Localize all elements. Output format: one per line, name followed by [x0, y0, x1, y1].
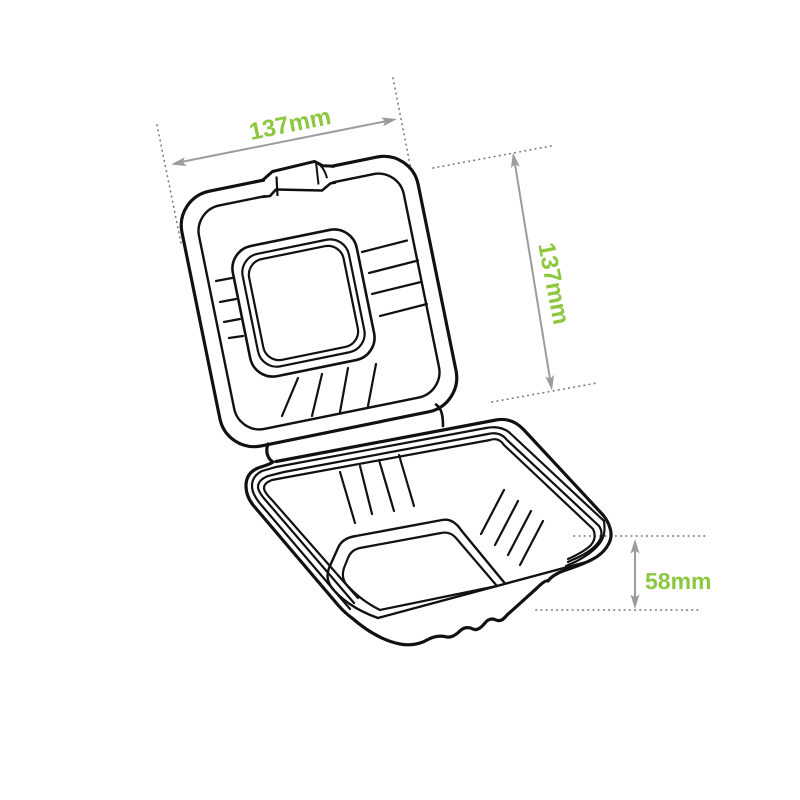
svg-text:58mm: 58mm [645, 568, 711, 594]
